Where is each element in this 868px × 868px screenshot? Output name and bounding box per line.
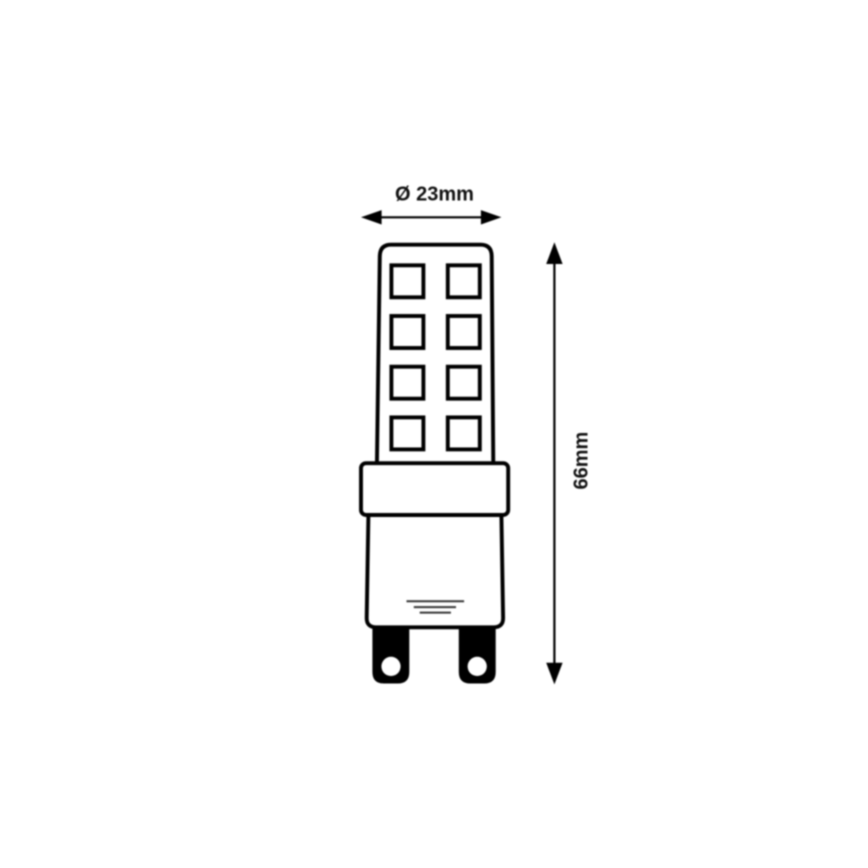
svg-text:66mm: 66mm [571, 432, 593, 490]
svg-text:Ø 23mm: Ø 23mm [395, 184, 474, 206]
